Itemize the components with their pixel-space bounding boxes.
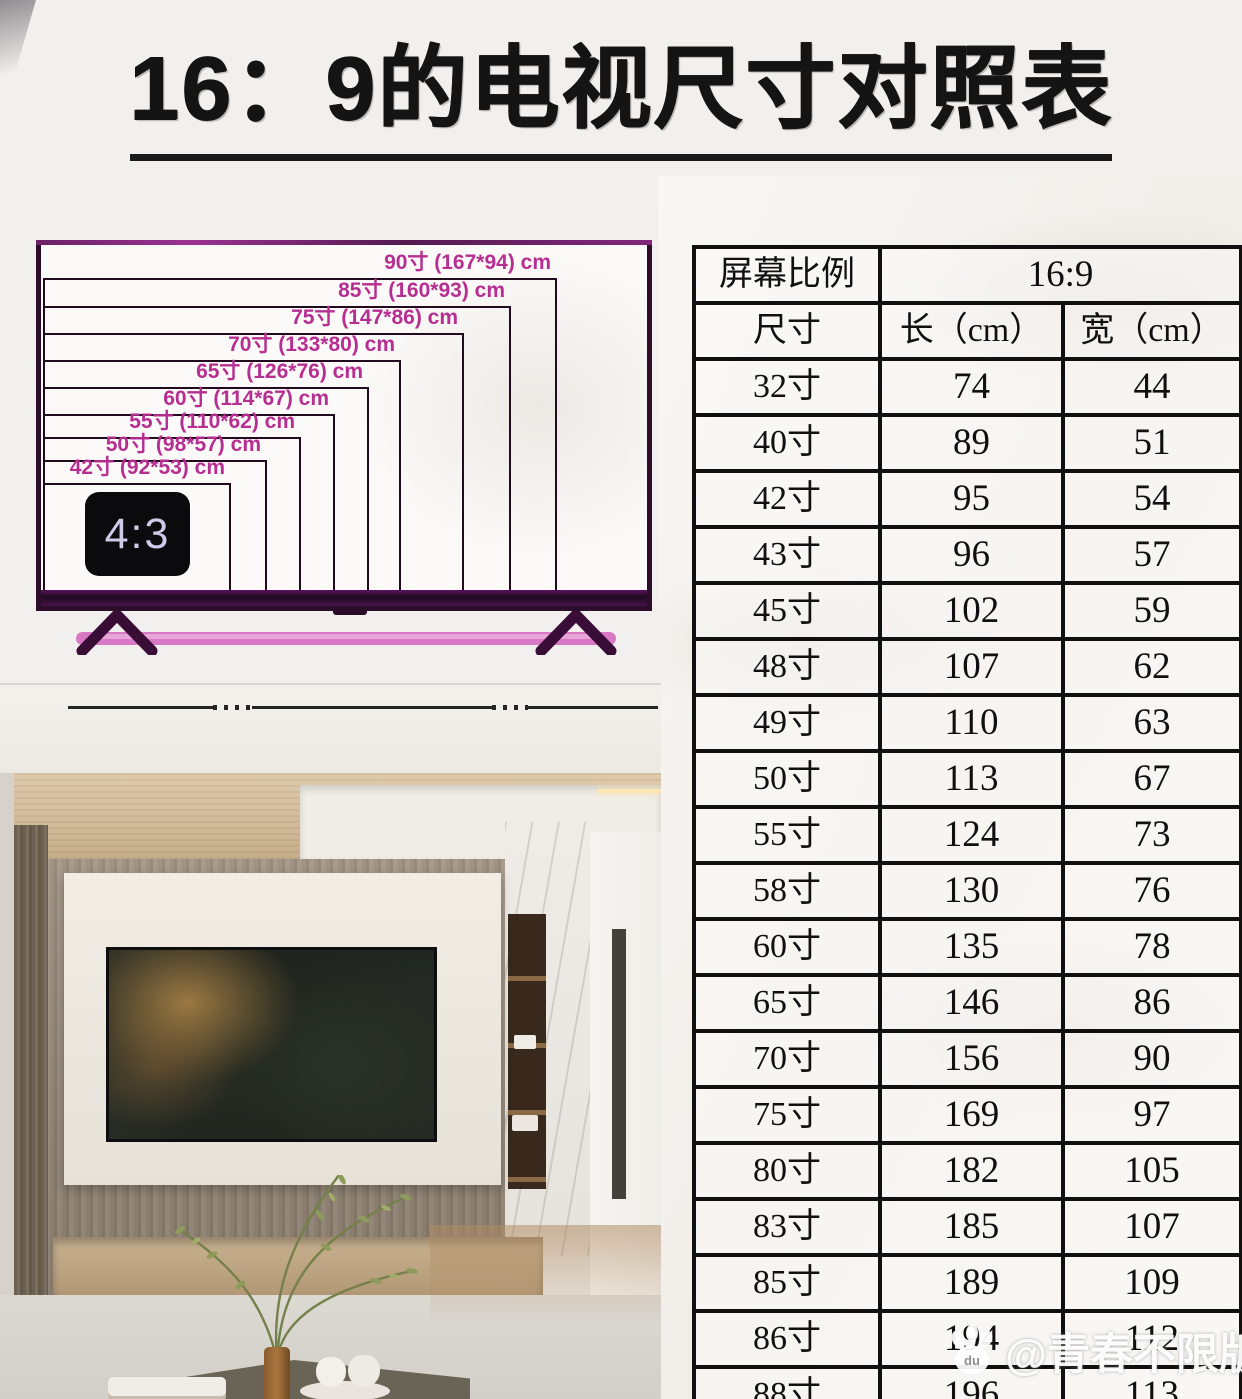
shelf-decor — [514, 1035, 536, 1049]
length-cell: 130 — [880, 863, 1063, 919]
size-cell: 43寸 — [694, 527, 880, 583]
table-row: 45寸10259 — [694, 583, 1241, 639]
size-cell: 48寸 — [694, 639, 880, 695]
size-cell: 85寸 — [694, 1255, 880, 1311]
length-cell: 95 — [880, 471, 1063, 527]
length-cell: 124 — [880, 807, 1063, 863]
size-cell: 75寸 — [694, 1087, 880, 1143]
width-cell: 97 — [1063, 1087, 1241, 1143]
watermark: du @青春不限版 — [944, 1320, 1242, 1382]
plant — [150, 1175, 470, 1360]
size-label: 75寸 (147*86) cm — [291, 301, 458, 331]
length-cell: 182 — [880, 1143, 1063, 1199]
size-table-body: 32寸744440寸895142寸955443寸965745寸1025948寸1… — [694, 359, 1241, 1399]
page: 16：9的电视尺寸对照表 4:3 90寸 (167*94) cm85寸 (160… — [0, 0, 1242, 1399]
decor-bowl — [300, 1381, 390, 1399]
size-cell: 45寸 — [694, 583, 880, 639]
size-table-container: 屏幕比例 16:9 尺寸 长（cm） 宽（cm） 32寸744440寸89514… — [692, 245, 1242, 1399]
size-label: 70寸 (133*80) cm — [228, 328, 395, 358]
title-underline — [130, 154, 1112, 161]
table-row: 55寸12473 — [694, 807, 1241, 863]
table-row: 49寸11063 — [694, 695, 1241, 751]
size-cell: 86寸 — [694, 1311, 880, 1367]
paw-icon-letters: du — [964, 1353, 980, 1368]
width-cell: 76 — [1063, 863, 1241, 919]
dark-wood-pillar — [14, 825, 48, 1299]
table-row: 70寸15690 — [694, 1031, 1241, 1087]
size-cell: 70寸 — [694, 1031, 880, 1087]
wall-tv-screen — [106, 947, 437, 1142]
ceiling-track-light — [252, 706, 492, 709]
column-header-width: 宽（cm） — [1063, 303, 1241, 359]
length-cell: 185 — [880, 1199, 1063, 1255]
table-row: 85寸189109 — [694, 1255, 1241, 1311]
table-row: 50寸11367 — [694, 751, 1241, 807]
shelf-decor — [512, 1115, 538, 1131]
table-row: 48寸10762 — [694, 639, 1241, 695]
door-frame — [612, 929, 626, 1199]
width-cell: 63 — [1063, 695, 1241, 751]
size-label: 85寸 (160*93) cm — [338, 274, 505, 304]
size-cell: 55寸 — [694, 807, 880, 863]
width-cell: 54 — [1063, 471, 1241, 527]
size-label: 90寸 (167*94) cm — [384, 246, 551, 276]
table-row: 43寸9657 — [694, 527, 1241, 583]
size-cell: 80寸 — [694, 1143, 880, 1199]
table-row: 65寸14686 — [694, 975, 1241, 1031]
ceiling-track-light — [68, 706, 213, 709]
column-header-size: 尺寸 — [694, 303, 880, 359]
table-ratio-row: 屏幕比例 16:9 — [694, 247, 1241, 303]
length-cell: 110 — [880, 695, 1063, 751]
watermark-text: @青春不限版 — [1005, 1320, 1242, 1382]
tv-screen-area: 4:3 90寸 (167*94) cm85寸 (160*93) cm75寸 (1… — [41, 245, 647, 590]
size-label: 65寸 (126*76) cm — [196, 355, 363, 385]
size-label: 42寸 (92*53) cm — [70, 451, 225, 481]
living-room-photo — [0, 683, 661, 1399]
shelf-niche — [508, 914, 546, 1189]
size-cell: 40寸 — [694, 415, 880, 471]
wooden-vase — [264, 1347, 290, 1399]
ceiling-track-light — [528, 706, 658, 709]
page-title: 16：9的电视尺寸对照表 — [129, 38, 1113, 142]
length-cell: 113 — [880, 751, 1063, 807]
folded-cloth — [108, 1377, 226, 1399]
table-row: 32寸7444 — [694, 359, 1241, 415]
ratio-header-cell: 屏幕比例 — [694, 247, 880, 303]
decor-pinecone — [348, 1355, 380, 1387]
ratio-value-cell: 16:9 — [880, 247, 1241, 303]
size-cell: 88寸 — [694, 1367, 880, 1399]
length-cell: 156 — [880, 1031, 1063, 1087]
length-cell: 146 — [880, 975, 1063, 1031]
ceiling-track-dots — [492, 705, 528, 710]
width-cell: 73 — [1063, 807, 1241, 863]
width-cell: 90 — [1063, 1031, 1241, 1087]
size-rectangle — [43, 483, 231, 590]
table-row: 60寸13578 — [694, 919, 1241, 975]
length-cell: 96 — [880, 527, 1063, 583]
length-cell: 169 — [880, 1087, 1063, 1143]
size-cell: 32寸 — [694, 359, 880, 415]
length-cell: 189 — [880, 1255, 1063, 1311]
led-strip-light — [598, 789, 661, 793]
size-table: 屏幕比例 16:9 尺寸 长（cm） 宽（cm） 32寸744440寸89514… — [692, 245, 1242, 1399]
size-cell: 83寸 — [694, 1199, 880, 1255]
tv-stand — [36, 611, 652, 655]
width-cell: 59 — [1063, 583, 1241, 639]
tv-size-diagram: 4:3 90寸 (167*94) cm85寸 (160*93) cm75寸 (1… — [36, 240, 652, 611]
ceiling-track-dots — [213, 705, 252, 710]
width-cell: 67 — [1063, 751, 1241, 807]
size-cell: 49寸 — [694, 695, 880, 751]
width-cell: 107 — [1063, 1199, 1241, 1255]
width-cell: 109 — [1063, 1255, 1241, 1311]
table-row: 58寸13076 — [694, 863, 1241, 919]
table-row: 80寸182105 — [694, 1143, 1241, 1199]
width-cell: 51 — [1063, 415, 1241, 471]
tv-stand-base-highlight — [96, 634, 596, 639]
table-row: 75寸16997 — [694, 1087, 1241, 1143]
photo-ceiling — [0, 685, 661, 773]
size-cell: 50寸 — [694, 751, 880, 807]
width-cell: 78 — [1063, 919, 1241, 975]
length-cell: 74 — [880, 359, 1063, 415]
width-cell: 86 — [1063, 975, 1241, 1031]
length-cell: 107 — [880, 639, 1063, 695]
length-cell: 135 — [880, 919, 1063, 975]
column-header-length: 长（cm） — [880, 303, 1063, 359]
tv-logo-notch — [333, 611, 367, 615]
width-cell: 62 — [1063, 639, 1241, 695]
size-cell: 58寸 — [694, 863, 880, 919]
width-cell: 57 — [1063, 527, 1241, 583]
decor-pinecone — [316, 1357, 346, 1387]
tv-bezel — [41, 590, 647, 606]
width-cell: 105 — [1063, 1143, 1241, 1199]
width-cell: 44 — [1063, 359, 1241, 415]
title-block: 16：9的电视尺寸对照表 — [0, 38, 1242, 161]
length-cell: 102 — [880, 583, 1063, 639]
table-header-row: 尺寸 长（cm） 宽（cm） — [694, 303, 1241, 359]
table-row: 42寸9554 — [694, 471, 1241, 527]
size-cell: 42寸 — [694, 471, 880, 527]
size-cell: 60寸 — [694, 919, 880, 975]
table-row: 83寸185107 — [694, 1199, 1241, 1255]
paw-icon: du — [944, 1323, 1000, 1379]
table-row: 40寸8951 — [694, 415, 1241, 471]
size-cell: 65寸 — [694, 975, 880, 1031]
length-cell: 89 — [880, 415, 1063, 471]
